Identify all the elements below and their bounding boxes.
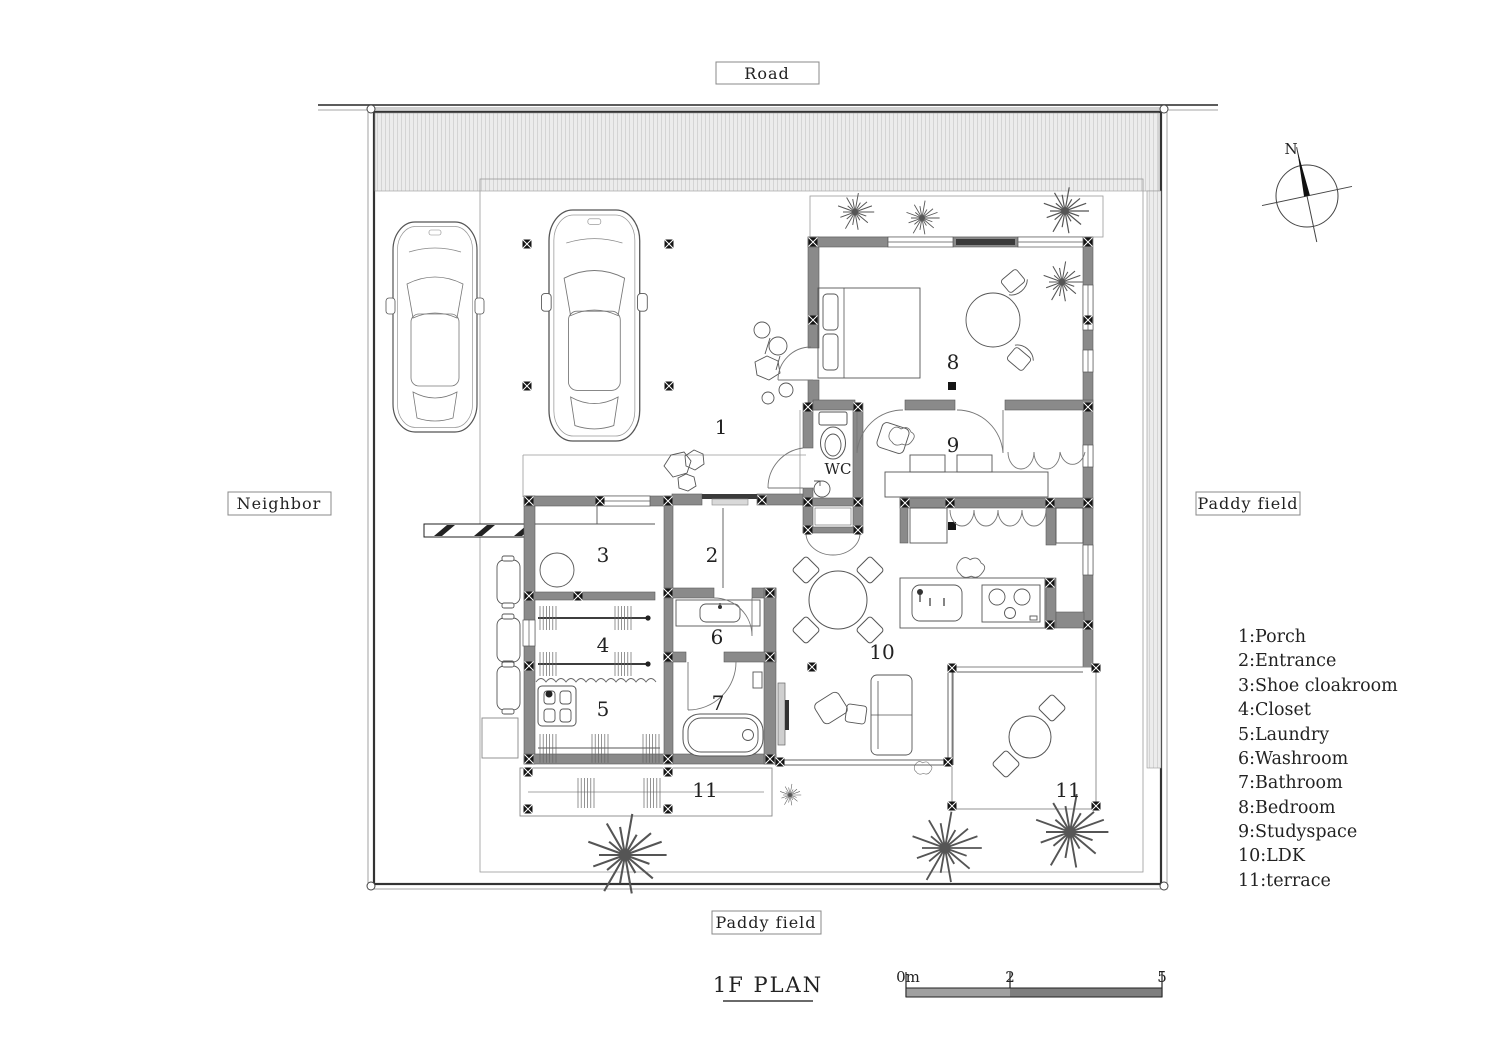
road-label: Road [744,64,789,83]
bed [818,288,920,378]
legend-item: 4:Closet [1238,700,1311,720]
cupboard [1056,508,1083,543]
plan-title: 1F PLAN [713,973,823,997]
room-number-shoe-cloakroom: 3 [597,543,610,567]
scale-bar: 0m 2 5 [896,968,1167,997]
legend-item: 10:LDK [1238,846,1306,866]
floor-plan-drawing: 1 2 3 4 5 6 7 8 9 10 11 11 WC Road Neigh… [0,0,1500,1038]
drawing-title: 1F PLAN [713,973,823,1001]
toilet [819,412,847,459]
room-number-closet: 4 [597,633,610,657]
legend-item: 8:Bedroom [1238,798,1336,818]
legend-item: 1:Porch [1238,627,1306,647]
legend-item: 2:Entrance [1238,651,1336,671]
site-corner-marker [1160,105,1168,113]
garden-rocks [664,450,704,491]
tv-board [778,683,789,745]
bedroom-table [966,293,1020,347]
tree [913,812,982,882]
entrance-step [712,499,748,505]
stool [540,553,574,587]
shower-fixture [753,672,762,688]
legend-item: 7:Bathroom [1238,773,1343,793]
wc-label: WC [825,460,852,478]
pantry-shelf [815,508,851,525]
kitchen-island [900,578,1045,628]
legend-item: 5:Laundry [1238,725,1329,745]
legend-item: 11:terrace [1238,871,1331,891]
legend-item: 6:Washroom [1238,749,1349,769]
room-number-entrance: 2 [706,543,719,567]
porch-ornament [754,322,793,404]
dining-table [809,571,867,629]
figure [957,558,985,578]
parking [386,210,674,441]
site-corner-marker [367,105,375,113]
room-number-bedroom: 8 [947,350,960,374]
scale-tick-0m: 0m [896,968,920,986]
desk-shelf [957,455,992,472]
vanity [676,600,760,626]
tree [588,814,666,894]
chair [1005,341,1037,373]
desk [885,472,1048,497]
washing-machine [538,686,576,726]
paddy-field-right-label: Paddy field [1197,494,1298,513]
outdoor-units [482,556,520,758]
entrance-sliding-door [702,494,757,499]
terrace-table [1009,716,1051,758]
curtain-divider [536,679,656,683]
equipment-pad [482,718,518,758]
chair [999,267,1031,299]
site-corner-marker [1160,882,1168,890]
bifold-doors [1008,452,1085,469]
car [541,210,647,441]
paddy-field-bottom-label: Paddy field [715,913,816,932]
pet-figure [914,762,932,775]
room-number-terrace-left: 11 [692,778,717,802]
site-corner-marker [367,882,375,890]
closet-rods [538,618,648,664]
bathtub [683,714,763,756]
room-number-washroom: 6 [711,625,724,649]
east-hatch-strip [1147,191,1161,768]
room-number-laundry: 5 [597,697,610,721]
compass: N [1252,138,1362,252]
floor-plan-sheet: 1 2 3 4 5 6 7 8 9 10 11 11 WC Road Neigh… [0,0,1500,1038]
desk-chair [876,421,911,454]
sliding-door [956,239,1015,245]
bifold-doors [950,510,1046,526]
legend: 1:Porch 2:Entrance 3:Shoe cloakroom 4:Cl… [1238,627,1398,891]
compass-north-label: N [1284,140,1297,158]
post [948,382,956,390]
car [386,222,484,432]
wc-sink [814,481,830,497]
room-number-terrace-right: 11 [1055,778,1080,802]
neighbor-label: Neighbor [237,494,322,513]
room-number-studyspace: 9 [947,433,960,457]
sofa [813,675,912,755]
room-number-ldk: 10 [869,640,894,664]
room-number-porch: 1 [715,415,728,439]
desk-shelf [910,455,945,472]
legend-item: 3:Shoe cloakroom [1238,676,1398,696]
refrigerator [910,508,947,543]
legend-item: 9:Studyspace [1238,822,1357,842]
room-number-bathroom: 7 [712,691,725,715]
